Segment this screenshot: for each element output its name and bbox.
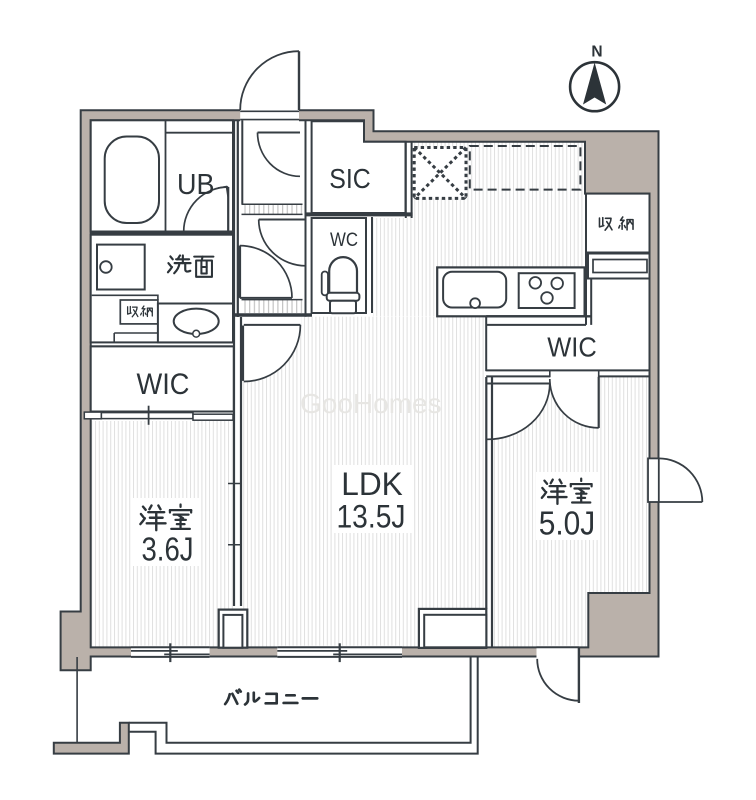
svg-text:WIC: WIC bbox=[547, 332, 597, 363]
svg-text:GooHomes: GooHomes bbox=[300, 388, 442, 419]
svg-text:3.6J: 3.6J bbox=[142, 531, 194, 568]
svg-text:SIC: SIC bbox=[329, 163, 371, 194]
svg-text:5.0J: 5.0J bbox=[539, 505, 596, 542]
svg-text:WIC: WIC bbox=[137, 368, 190, 401]
svg-text:LDK: LDK bbox=[341, 466, 403, 502]
svg-text:WC: WC bbox=[330, 230, 358, 251]
svg-text:13.5J: 13.5J bbox=[337, 499, 406, 535]
svg-text:N: N bbox=[591, 44, 602, 61]
svg-text:UB: UB bbox=[177, 169, 215, 201]
